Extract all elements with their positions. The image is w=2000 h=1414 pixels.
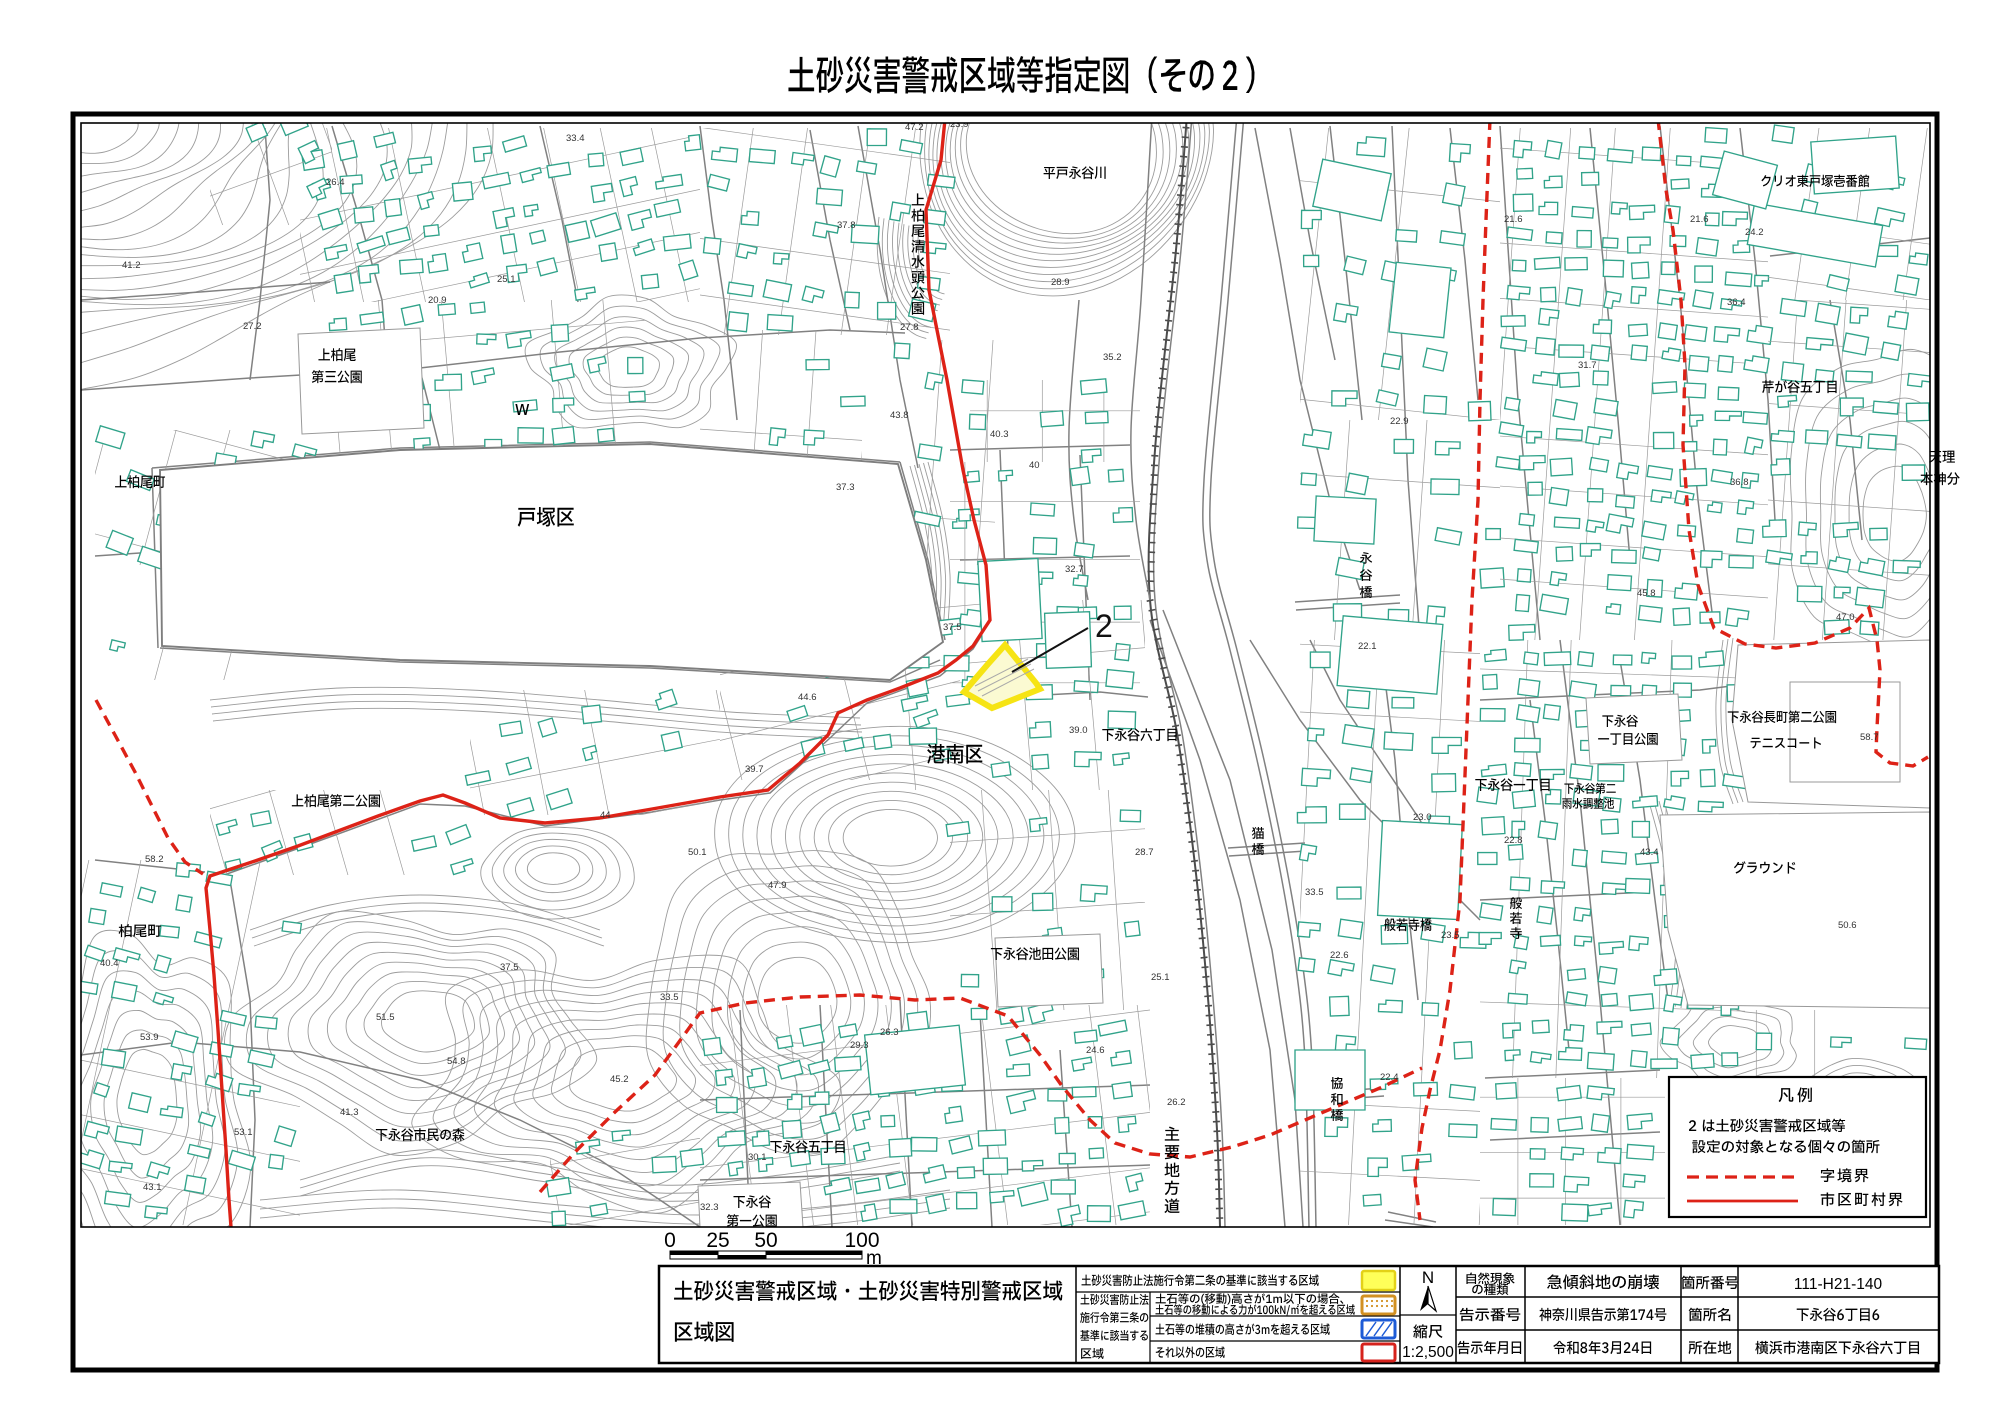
svg-text:45.8: 45.8 [1637, 588, 1656, 599]
svg-text:58.7: 58.7 [1860, 732, 1879, 743]
svg-text:21.6: 21.6 [1504, 214, 1523, 225]
svg-text:40.4: 40.4 [100, 958, 119, 969]
svg-text:25: 25 [706, 1229, 729, 1252]
svg-text:39.7: 39.7 [745, 764, 764, 775]
svg-text:25.1: 25.1 [1151, 972, 1170, 983]
svg-text:26.3: 26.3 [880, 1027, 899, 1038]
svg-text:22.8: 22.8 [1504, 835, 1523, 846]
svg-text:51.5: 51.5 [376, 1012, 395, 1023]
svg-text:29.3: 29.3 [850, 1040, 869, 1051]
svg-text:53.1: 53.1 [234, 1127, 253, 1138]
svg-text:24.2: 24.2 [1745, 227, 1764, 238]
svg-text:50.6: 50.6 [1838, 920, 1857, 931]
svg-text:27.8: 27.8 [900, 322, 919, 333]
svg-text:22.1: 22.1 [1358, 641, 1377, 652]
svg-text:37.3: 37.3 [836, 482, 855, 493]
svg-text:47.0: 47.0 [1836, 612, 1855, 623]
svg-text:43.4: 43.4 [1640, 847, 1659, 858]
svg-text:111-H21-140: 111-H21-140 [1794, 1276, 1883, 1293]
svg-text:32.3: 32.3 [700, 1202, 719, 1213]
svg-text:26.2: 26.2 [1167, 1097, 1186, 1108]
svg-text:47.9: 47.9 [768, 880, 787, 891]
svg-text:31.7: 31.7 [1578, 360, 1597, 371]
svg-text:22.6: 22.6 [1330, 950, 1349, 961]
svg-text:26.4: 26.4 [326, 177, 345, 188]
svg-text:36.8: 36.8 [1730, 477, 1749, 488]
svg-text:30.1: 30.1 [748, 1152, 767, 1163]
svg-text:33.5: 33.5 [660, 992, 679, 1003]
svg-text:44.6: 44.6 [798, 692, 817, 703]
svg-text:0: 0 [664, 1229, 676, 1252]
svg-text:23.0: 23.0 [1413, 812, 1432, 823]
svg-text:33.5: 33.5 [1305, 887, 1324, 898]
svg-text:40.3: 40.3 [990, 429, 1009, 440]
svg-text:20.9: 20.9 [428, 295, 447, 306]
svg-text:58.2: 58.2 [145, 854, 164, 865]
svg-text:23.5: 23.5 [1441, 930, 1460, 941]
svg-text:1:2,500: 1:2,500 [1402, 1344, 1454, 1361]
svg-text:45.2: 45.2 [610, 1074, 629, 1085]
svg-text:39.0: 39.0 [1069, 725, 1088, 736]
svg-text:N: N [1422, 1268, 1434, 1287]
svg-text:37.8: 37.8 [837, 220, 856, 231]
svg-text:36.4: 36.4 [1727, 297, 1746, 308]
svg-text:21.6: 21.6 [1690, 214, 1709, 225]
svg-text:22.9: 22.9 [1390, 416, 1409, 427]
svg-text:22.4: 22.4 [1380, 1072, 1399, 1083]
svg-text:27.2: 27.2 [243, 321, 262, 332]
svg-text:50: 50 [754, 1229, 777, 1252]
svg-text:43.1: 43.1 [143, 1182, 162, 1193]
svg-text:53.9: 53.9 [140, 1032, 159, 1043]
svg-text:28.9: 28.9 [1051, 277, 1070, 288]
svg-text:25.1: 25.1 [497, 274, 516, 285]
svg-text:37.5: 37.5 [943, 622, 962, 633]
svg-text:33.4: 33.4 [566, 133, 585, 144]
svg-text:54.8: 54.8 [447, 1056, 466, 1067]
svg-text:37.5: 37.5 [500, 962, 519, 973]
svg-text:50.1: 50.1 [688, 847, 707, 858]
svg-text:40: 40 [1029, 460, 1040, 471]
svg-text:43.8: 43.8 [890, 410, 909, 421]
svg-text:24.6: 24.6 [1086, 1045, 1105, 1056]
svg-text:41.2: 41.2 [122, 260, 141, 271]
svg-text:44: 44 [600, 810, 611, 821]
svg-text:41.3: 41.3 [340, 1107, 359, 1118]
svg-text:28.7: 28.7 [1135, 847, 1154, 858]
svg-text:32.7: 32.7 [1065, 564, 1084, 575]
svg-text:35.2: 35.2 [1103, 352, 1122, 363]
svg-text:2: 2 [1095, 608, 1113, 644]
